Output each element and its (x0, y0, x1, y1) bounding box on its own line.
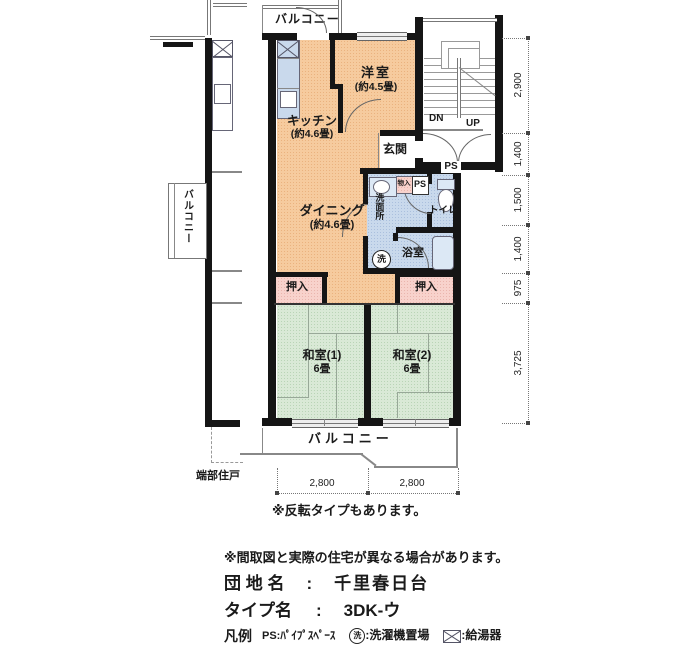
dim-bottom-1: 2,800 (384, 478, 440, 489)
dining-label: ダイニング (約4.6畳) (288, 204, 376, 232)
balcony-top-edge (262, 5, 263, 33)
legend-laundry-text: :洗濯機置場 (365, 629, 429, 643)
kitchen-name: キッチン (272, 114, 352, 128)
neighbor-balcony-edge (211, 427, 212, 463)
washitsu2-label: 和室(2) 6畳 (377, 349, 447, 375)
dim-tick (526, 36, 530, 40)
dim-right-0: 2,900 (513, 55, 525, 115)
kitchen-label: キッチン (約4.6畳) (272, 114, 352, 140)
type-name-label: タイプ名 (224, 601, 292, 620)
type-colon: : (316, 601, 322, 620)
wall-bottom (358, 418, 383, 426)
washitsu2-size: 6畳 (377, 363, 447, 376)
wall-washitsu-divider (364, 305, 371, 418)
dim-tick-line (502, 38, 529, 39)
estate-name-label: 団 地 名 (224, 574, 284, 593)
balcony-left-label: バルコニー (181, 189, 193, 244)
kitchen-size: (約4.6畳) (272, 128, 352, 140)
balcony-bottom-right-edge (456, 428, 458, 468)
window-center-mark (324, 419, 325, 426)
kitchen-sink (280, 91, 297, 108)
oshiire-right-label: 押入 (415, 281, 437, 294)
laundry-space-icon: 洗 (372, 250, 391, 269)
stair-top-line (423, 18, 497, 22)
neighbor-line (212, 171, 242, 173)
window-washitsu1 (292, 419, 358, 428)
dim-tick (526, 173, 530, 177)
wall-left (268, 33, 276, 425)
legend-title: 凡例 (224, 628, 252, 644)
genkan-label: 玄関 (383, 143, 407, 157)
wall-oshiire-top (270, 272, 328, 277)
stair-landing-inner (448, 48, 480, 69)
balcony-bottom-line (240, 453, 363, 455)
yoshitsu-size: (約4.5畳) (330, 81, 422, 93)
stair-up-label: UP (466, 118, 480, 130)
neighbor-balcony-line (213, 3, 247, 7)
dining-name: ダイニング (288, 204, 376, 219)
neighbor-line (212, 270, 242, 272)
yoshitsu-label: 洋室 (約4.5畳) (330, 66, 422, 93)
legend-ps: PS:ﾊﾟｲﾌﾟｽﾍﾟｰｽ (262, 630, 335, 643)
window-center-mark (415, 419, 416, 426)
wall-bottom (449, 418, 461, 426)
balcony-bottom-label: バルコニー (308, 432, 393, 447)
neighbor-wall (163, 42, 193, 47)
tatami-line (277, 397, 308, 398)
wall-toilet-bath (396, 227, 457, 233)
monoire-label: 物入 (396, 180, 412, 187)
estate-name-row: 団 地 名:千里春日台 (224, 574, 429, 594)
legend-row: 凡例 PS:ﾊﾟｲﾌﾟｽﾍﾟｰｽ 洗 :洗濯機置場 :給湯器 (224, 628, 501, 644)
washitsu2-name: 和室(2) (377, 349, 447, 363)
neighbor-balcony-edge (211, 462, 243, 463)
wall-bottom (262, 418, 292, 426)
washbasin-bowl (373, 180, 390, 194)
balcony-bottom-left-edge (262, 428, 263, 454)
dim-tick (526, 421, 530, 425)
wall-oshiire-side (395, 272, 400, 305)
washitsu1-name: 和室(1) (287, 349, 357, 363)
dim-tick (275, 491, 279, 495)
dim-line-right (528, 38, 529, 424)
balcony-left-innerline (174, 183, 175, 258)
balcony-bottom-line (374, 466, 458, 468)
dim-right-5: 3,725 (513, 333, 525, 393)
neighbor-sink (214, 84, 231, 104)
balcony-door-arc (296, 7, 327, 33)
note-reverse: ※反転タイプもあります。 (272, 504, 426, 519)
dim-tick (366, 491, 370, 495)
dim-tick (526, 301, 530, 305)
legend-laundry-icon: 洗 (349, 628, 365, 644)
neighbor-line (212, 302, 242, 304)
balcony-bottom-step (360, 453, 376, 466)
tatami-line (397, 305, 398, 333)
genkan-step-line (378, 133, 379, 168)
dim-right-4: 975 (513, 258, 525, 318)
neighbor-wall (205, 420, 240, 427)
legend-laundry-char: 洗 (353, 631, 361, 640)
dim-tick (526, 223, 530, 227)
dim-tick (456, 491, 460, 495)
neighbor-water-heater-icon (212, 40, 233, 57)
counter-line (277, 88, 299, 89)
wall-porch-bottom (461, 162, 503, 170)
dining-size: (約4.6畳) (288, 219, 376, 232)
estate-name-value: 千里春日台 (334, 574, 429, 593)
neighbor-door-arc (458, 134, 491, 163)
neighbor-unit-label: 端部住戸 (196, 470, 240, 483)
window-washitsu2 (383, 419, 449, 428)
bath-label: 浴室 (402, 247, 424, 260)
senmenjo-label: 洗面所 (374, 193, 384, 220)
floorplan-page: バルコニー 端部住戸 バルコニー DN UP (0, 0, 700, 650)
tatami-line (397, 392, 398, 418)
note-disclaimer: ※間取図と実際の住宅が異なる場合があります。 (224, 551, 508, 566)
tatami-line (371, 333, 455, 334)
tatami-line (397, 392, 455, 393)
type-name-row: タイプ名:3DK-ウ (224, 601, 400, 621)
dim-tick-line (502, 423, 529, 424)
dim-tick (526, 271, 530, 275)
wall-oshiire-side (322, 272, 327, 305)
neighbor-line (150, 36, 205, 40)
tatami-line (336, 333, 337, 418)
yoshitsu-name: 洋室 (330, 66, 422, 81)
washitsu1-size: 6畳 (287, 363, 357, 376)
dim-bottom-0: 2,800 (294, 478, 350, 489)
toilet-label: トイレ (429, 206, 458, 217)
porch-ps-label: PS (441, 161, 461, 173)
bathtub (432, 236, 454, 270)
counter-line (277, 58, 299, 59)
type-name-value: 3DK-ウ (344, 601, 401, 620)
laundry-space-char: 洗 (377, 254, 386, 264)
dim-tick (526, 131, 530, 135)
legend-heater-text: :給湯器 (461, 629, 501, 643)
wall-top (262, 33, 297, 40)
wall-wet-left (363, 168, 368, 204)
stair-dn-label: DN (429, 113, 443, 125)
water-heater-icon (277, 40, 299, 58)
legend-heater-icon (443, 630, 461, 643)
ps-closet-label: PS (412, 179, 428, 189)
wall-genkan-porch (415, 133, 423, 141)
estate-colon: : (306, 574, 312, 593)
oshiire-left-label: 押入 (286, 281, 308, 294)
washitsu1-label: 和室(1) 6畳 (287, 349, 357, 375)
wall-oshiire-top (395, 272, 455, 277)
window-yoshitsu (357, 32, 407, 41)
entrance-door-arc (423, 133, 458, 163)
neighbor-pipe-line (207, 0, 211, 35)
